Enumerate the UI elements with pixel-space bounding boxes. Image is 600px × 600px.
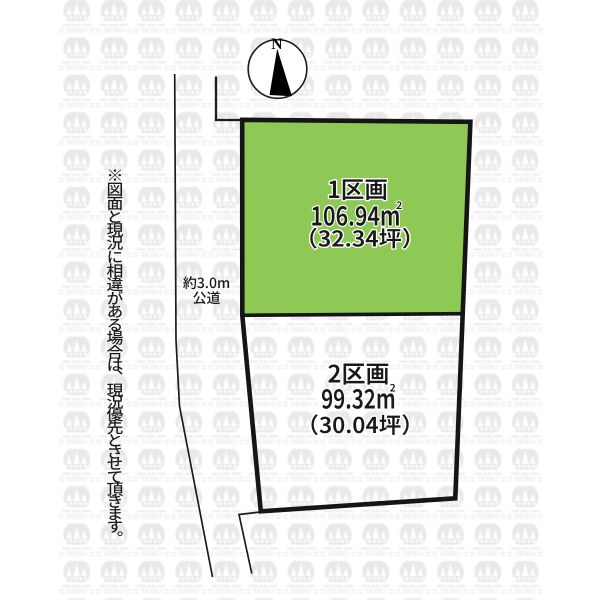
svg-text:2: 2 xyxy=(396,198,402,213)
svg-text:（30.04坪）: （30.04坪） xyxy=(296,408,424,439)
svg-text:2: 2 xyxy=(390,381,396,396)
svg-text:（32.34坪）: （32.34坪） xyxy=(295,222,425,253)
svg-text:N: N xyxy=(271,36,282,53)
